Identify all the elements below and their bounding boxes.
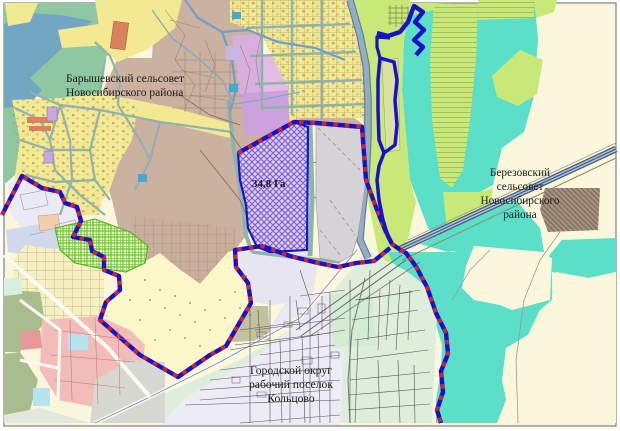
- svg-text:Новосибирского района: Новосибирского района: [66, 87, 183, 99]
- svg-text:Березовский: Березовский: [490, 167, 550, 179]
- svg-text:района: района: [503, 209, 536, 221]
- svg-text:34,8 Га: 34,8 Га: [252, 178, 286, 190]
- svg-text:рабочий поселок: рабочий поселок: [249, 378, 333, 391]
- svg-text:Барышевский сельсовет: Барышевский сельсовет: [66, 73, 184, 85]
- svg-text:Кольцово: Кольцово: [267, 392, 315, 405]
- svg-text:Новосибирского: Новосибирского: [480, 195, 559, 207]
- svg-text:сельсовет: сельсовет: [497, 181, 544, 193]
- svg-text:Городской округ: Городской округ: [250, 364, 332, 377]
